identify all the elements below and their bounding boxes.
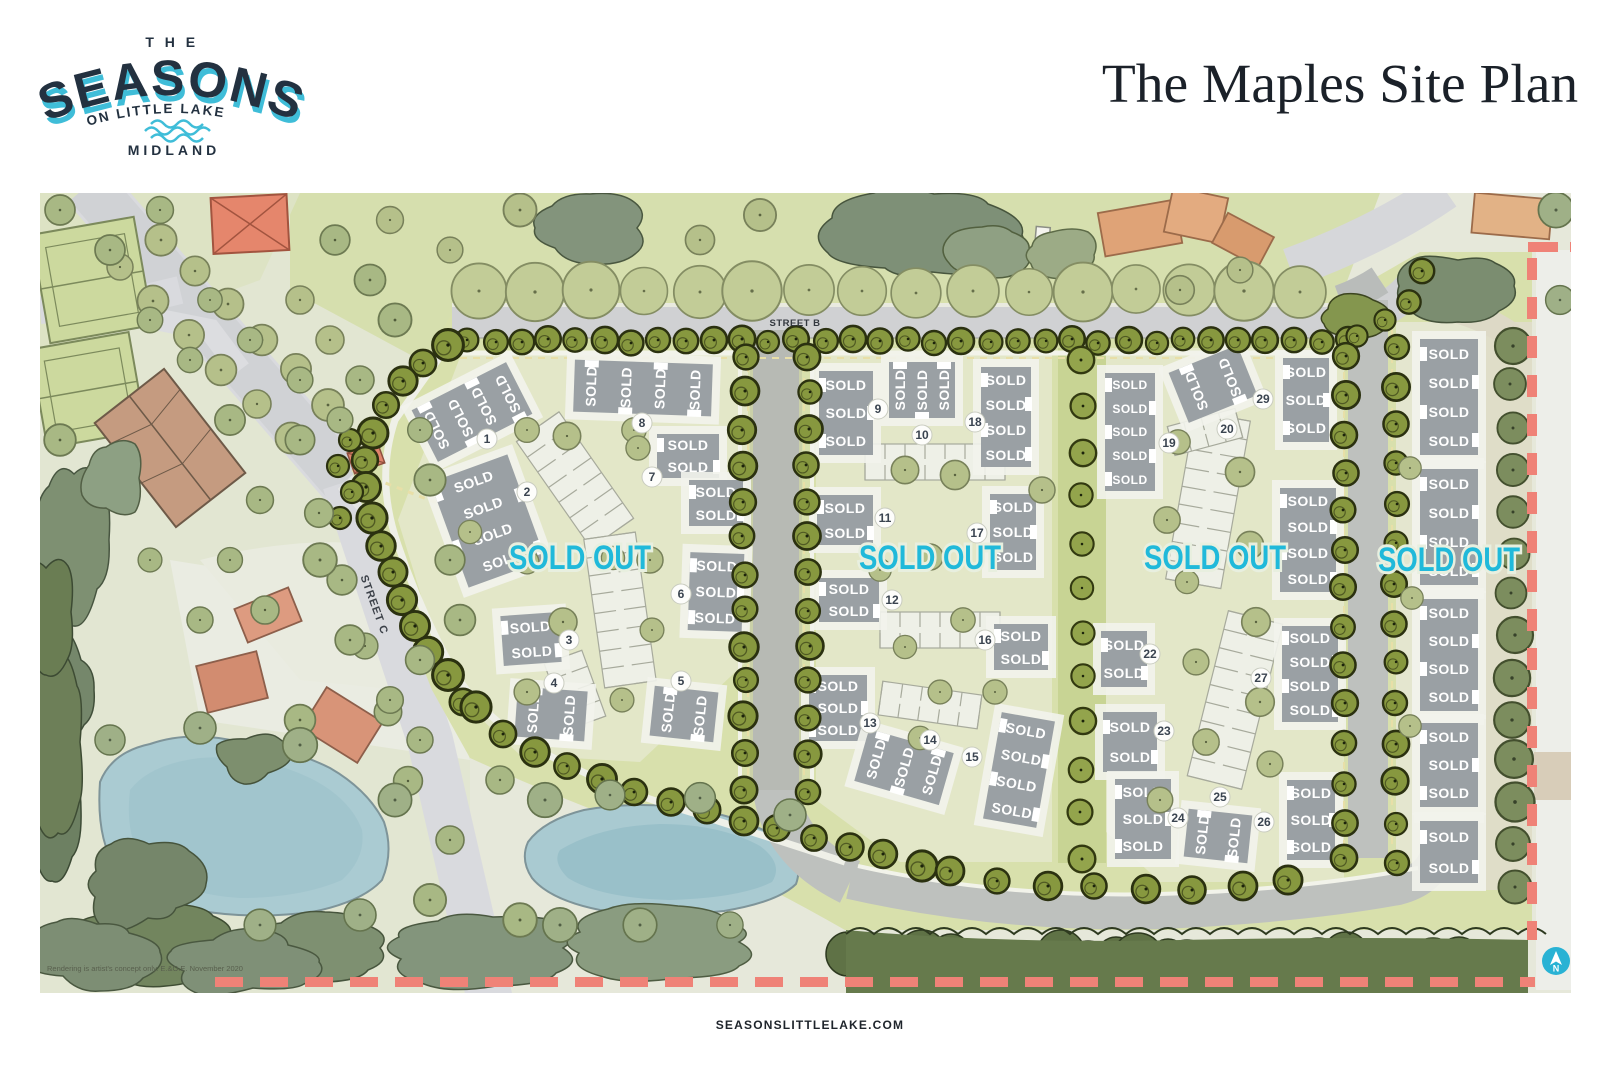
- svg-text:SOLD: SOLD: [1429, 860, 1470, 876]
- svg-text:SOLD: SOLD: [1123, 811, 1164, 827]
- svg-text:SOLD: SOLD: [694, 609, 735, 626]
- svg-text:SOLD: SOLD: [986, 422, 1027, 438]
- svg-text:SOLD: SOLD: [1110, 719, 1151, 735]
- svg-text:SOLD: SOLD: [1429, 505, 1470, 521]
- svg-text:SOLD: SOLD: [1288, 493, 1329, 509]
- svg-text:SOLD: SOLD: [936, 370, 952, 411]
- svg-text:SOLD: SOLD: [1429, 605, 1470, 621]
- svg-text:SOLD: SOLD: [696, 507, 737, 523]
- svg-text:SOLD: SOLD: [993, 499, 1034, 515]
- svg-text:SOLD: SOLD: [993, 524, 1034, 540]
- svg-text:The Maples Site Plan: The Maples Site Plan: [1102, 54, 1578, 115]
- svg-text:STREET B: STREET B: [770, 318, 821, 329]
- svg-text:SOLD: SOLD: [1290, 654, 1331, 670]
- svg-text:Rendering is artist's concept: Rendering is artist's concept only. E.&O…: [47, 964, 243, 973]
- svg-text:SOLD: SOLD: [1429, 729, 1470, 745]
- svg-text:SOLD: SOLD: [1291, 785, 1332, 801]
- svg-text:15: 15: [965, 750, 979, 764]
- svg-text:SOLD: SOLD: [582, 365, 599, 406]
- svg-text:SOLD: SOLD: [1291, 812, 1332, 828]
- svg-text:SOLD: SOLD: [818, 700, 859, 716]
- svg-text:SOLD: SOLD: [1110, 749, 1151, 765]
- svg-text:SOLD: SOLD: [1291, 839, 1332, 855]
- svg-text:SOLD OUT: SOLD OUT: [1378, 541, 1520, 579]
- svg-text:SOLD: SOLD: [511, 643, 553, 662]
- svg-text:SOLD: SOLD: [1286, 420, 1327, 436]
- svg-text:27: 27: [1254, 671, 1268, 685]
- svg-text:SOLD: SOLD: [826, 405, 867, 421]
- svg-text:SOLD: SOLD: [686, 369, 703, 410]
- svg-text:22: 22: [1143, 647, 1157, 661]
- svg-text:19: 19: [1162, 436, 1176, 450]
- svg-text:SOLD: SOLD: [1288, 545, 1329, 561]
- svg-text:SOLD: SOLD: [1429, 757, 1470, 773]
- svg-text:9: 9: [875, 402, 882, 416]
- svg-text:SOLD: SOLD: [1112, 378, 1147, 392]
- svg-text:25: 25: [1213, 790, 1227, 804]
- svg-text:SOLD: SOLD: [1112, 473, 1147, 487]
- svg-text:23: 23: [1157, 724, 1171, 738]
- svg-text:18: 18: [968, 415, 982, 429]
- svg-text:SOLD: SOLD: [1429, 476, 1470, 492]
- svg-text:SOLD: SOLD: [829, 603, 870, 619]
- svg-text:10: 10: [915, 428, 929, 442]
- svg-text:SOLD: SOLD: [651, 368, 668, 409]
- svg-text:SOLD: SOLD: [986, 447, 1027, 463]
- svg-text:6: 6: [678, 587, 685, 601]
- svg-text:SOLD: SOLD: [1429, 689, 1470, 705]
- svg-text:SOLD: SOLD: [1429, 661, 1470, 677]
- svg-text:3: 3: [566, 633, 573, 647]
- svg-text:SOLD: SOLD: [1290, 630, 1331, 646]
- svg-text:SOLD OUT: SOLD OUT: [859, 539, 1001, 577]
- svg-text:SOLD: SOLD: [1112, 402, 1147, 416]
- svg-text:SOLD: SOLD: [1429, 633, 1470, 649]
- svg-text:SOLD: SOLD: [1429, 375, 1470, 391]
- svg-text:24: 24: [1171, 811, 1185, 825]
- svg-text:SOLD: SOLD: [668, 437, 709, 453]
- svg-text:16: 16: [978, 633, 992, 647]
- svg-text:11: 11: [879, 511, 892, 525]
- svg-text:SOLD: SOLD: [1429, 433, 1470, 449]
- svg-text:SOLD: SOLD: [560, 694, 579, 736]
- svg-text:SOLD: SOLD: [818, 722, 859, 738]
- svg-text:SOLD: SOLD: [1001, 651, 1042, 667]
- svg-text:SOLD: SOLD: [1112, 425, 1147, 439]
- svg-text:SOLD: SOLD: [1286, 364, 1327, 380]
- svg-text:SOLD: SOLD: [892, 370, 908, 411]
- svg-text:SOLD: SOLD: [1429, 785, 1470, 801]
- svg-text:SOLD: SOLD: [1104, 637, 1145, 653]
- svg-text:SOLD: SOLD: [617, 367, 634, 408]
- svg-text:SEASONSLITTLELAKE.COM: SEASONSLITTLELAKE.COM: [716, 1018, 905, 1032]
- svg-text:SOLD: SOLD: [1123, 838, 1164, 854]
- svg-text:SOLD: SOLD: [1001, 628, 1042, 644]
- svg-text:8: 8: [639, 416, 646, 430]
- svg-text:N: N: [1553, 964, 1560, 974]
- svg-text:26: 26: [1257, 815, 1271, 829]
- svg-text:29: 29: [1256, 392, 1270, 406]
- svg-text:SOLD: SOLD: [818, 678, 859, 694]
- svg-text:SOLD: SOLD: [1429, 404, 1470, 420]
- svg-text:13: 13: [863, 716, 877, 730]
- svg-text:SOLD: SOLD: [1288, 571, 1329, 587]
- svg-text:SOLD: SOLD: [1112, 449, 1147, 463]
- svg-text:SOLD: SOLD: [986, 372, 1027, 388]
- svg-text:SOLD: SOLD: [986, 397, 1027, 413]
- svg-text:SOLD: SOLD: [696, 557, 737, 574]
- svg-text:SOLD: SOLD: [825, 500, 866, 516]
- svg-text:7: 7: [649, 470, 656, 484]
- svg-text:SOLD: SOLD: [1429, 829, 1470, 845]
- svg-text:T H E: T H E: [145, 34, 198, 50]
- svg-text:14: 14: [923, 733, 937, 747]
- svg-text:1: 1: [484, 432, 491, 446]
- svg-text:SOLD: SOLD: [1104, 665, 1145, 681]
- svg-text:4: 4: [551, 676, 558, 690]
- svg-text:SOLD: SOLD: [1288, 519, 1329, 535]
- svg-text:12: 12: [885, 593, 899, 607]
- svg-text:MIDLAND: MIDLAND: [128, 142, 221, 158]
- svg-text:20: 20: [1220, 422, 1234, 436]
- svg-text:SOLD OUT: SOLD OUT: [1144, 539, 1286, 577]
- svg-text:2: 2: [524, 485, 531, 499]
- svg-text:SOLD: SOLD: [1429, 346, 1470, 362]
- svg-text:SOLD: SOLD: [1286, 392, 1327, 408]
- svg-text:SOLD: SOLD: [826, 377, 867, 393]
- svg-text:SOLD: SOLD: [509, 618, 551, 637]
- svg-text:SOLD: SOLD: [914, 370, 930, 411]
- svg-text:SOLD OUT: SOLD OUT: [509, 539, 651, 577]
- svg-text:SOLD: SOLD: [829, 581, 870, 597]
- svg-text:SOLD: SOLD: [695, 583, 736, 600]
- svg-text:SOLD: SOLD: [1290, 702, 1331, 718]
- svg-text:5: 5: [678, 674, 685, 688]
- svg-text:17: 17: [970, 526, 984, 540]
- svg-text:SOLD: SOLD: [826, 433, 867, 449]
- svg-text:SOLD: SOLD: [1290, 678, 1331, 694]
